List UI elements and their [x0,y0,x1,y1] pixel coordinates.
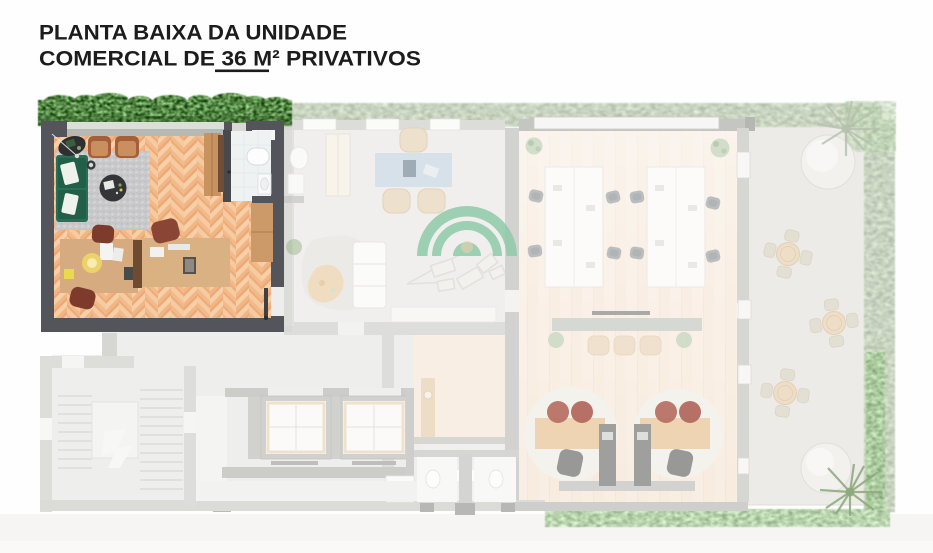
svg-text:COMERCIAL DE 36 M² PRIVATIVOS: COMERCIAL DE 36 M² PRIVATIVOS [39,47,421,71]
svg-text:PLANTA BAIXA DA UNIDADE: PLANTA BAIXA DA UNIDADE [39,21,347,45]
